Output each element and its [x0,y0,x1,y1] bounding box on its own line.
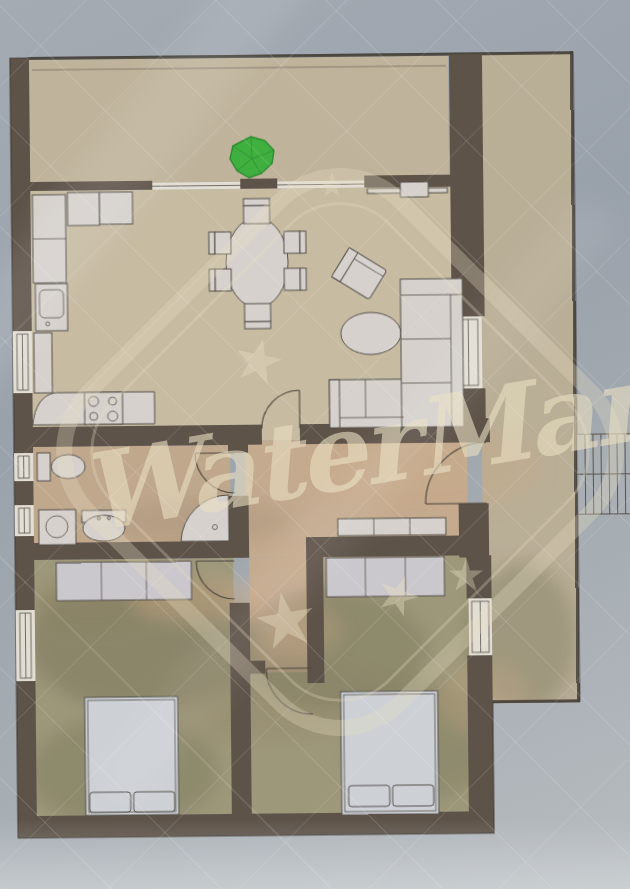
pillow [90,792,131,812]
wardrobe-2 [326,557,444,597]
ottoman [341,312,401,355]
washing-machine [39,510,76,545]
pillow [134,792,175,812]
hallway-closet [338,518,446,536]
pillow [349,785,390,806]
floor-plan-photo: WaterMark [0,0,630,889]
bathroom-window-1 [14,453,33,481]
floor-plan-drawing: WaterMark [0,0,630,889]
fridge [67,192,99,225]
kitchen-cabinet [99,192,132,224]
kitchen-window [13,331,33,393]
bathroom-window-2 [15,505,34,536]
bedroom-1-window [16,610,36,681]
kitchen-sink [35,284,67,331]
kitchen-counter-low [34,333,53,393]
pillow [393,785,434,806]
bed-1 [85,697,179,816]
